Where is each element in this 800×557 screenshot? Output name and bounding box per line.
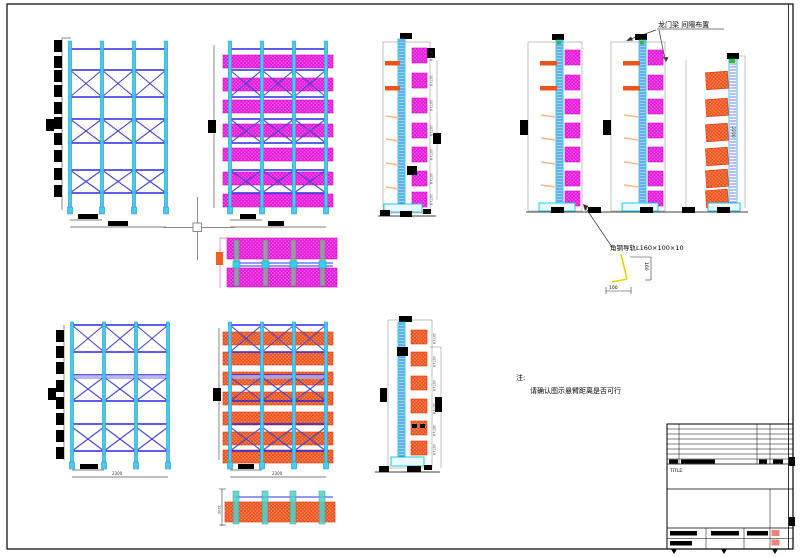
goods-block xyxy=(223,148,333,161)
redacted-dim xyxy=(268,221,284,226)
plan-post xyxy=(290,261,297,268)
redacted-dim xyxy=(54,70,62,82)
column xyxy=(102,322,105,462)
redacted-dim xyxy=(407,166,417,175)
foot-plate xyxy=(227,462,232,469)
cantilever-arm-thick xyxy=(540,61,557,66)
gantry-beam-label: 龙门梁 间隔布置 xyxy=(658,20,709,29)
overall-dim: 2300 xyxy=(272,471,283,476)
redacted-dim xyxy=(56,397,64,409)
goods-block xyxy=(411,352,427,366)
redacted-text xyxy=(670,541,692,546)
note-head: 注: xyxy=(516,373,525,382)
goods-magenta xyxy=(648,50,663,206)
foot-plate xyxy=(133,462,138,469)
height-dim-label: 2200 xyxy=(731,127,736,138)
dim-text: 1071.8 xyxy=(429,125,433,136)
goods-block xyxy=(223,194,333,207)
goods-block xyxy=(412,48,427,63)
goods-orange xyxy=(411,330,427,455)
goods-block xyxy=(411,376,427,390)
cantilever-arms xyxy=(541,115,555,187)
cantilever-arm xyxy=(541,138,555,140)
frame-elevation-bottom-left xyxy=(69,322,170,469)
highlight-beam xyxy=(70,375,170,379)
dim-text: 1071.8 xyxy=(432,356,436,367)
redacted-dim xyxy=(54,40,62,52)
strip-dim: 1200 xyxy=(217,505,221,514)
upright-column xyxy=(639,40,646,206)
cantilever-arm-thick xyxy=(385,61,400,66)
column xyxy=(260,41,263,207)
overall-dim: 2300 xyxy=(112,471,123,476)
top-cap xyxy=(399,316,412,322)
column xyxy=(324,322,327,462)
cantilever-arm-thick xyxy=(540,86,557,91)
cantilever-arms xyxy=(386,116,399,207)
cantilever-arm xyxy=(541,185,555,187)
leader-arrowhead xyxy=(626,37,633,42)
dim-100: 100 xyxy=(609,285,618,291)
redacted-dim xyxy=(238,464,254,469)
dim-text: 1071.8 xyxy=(429,75,433,86)
goods-block xyxy=(223,352,333,365)
redacted-dim xyxy=(412,424,417,428)
border-tick xyxy=(671,549,677,554)
foot-plate xyxy=(259,462,264,469)
column xyxy=(292,322,295,462)
base-pad xyxy=(424,465,432,470)
goods-block xyxy=(705,71,728,89)
dim-text: 1071.8 xyxy=(432,380,436,391)
foot-plate xyxy=(323,462,328,469)
redacted-dim xyxy=(54,168,62,180)
redacted-text xyxy=(773,460,783,464)
goods-block xyxy=(565,171,580,186)
goods-block xyxy=(565,147,580,162)
foot-plate xyxy=(227,207,232,214)
redacted-dim-stack xyxy=(56,330,64,459)
dim-160: 160 xyxy=(643,262,649,271)
redacted-text xyxy=(670,531,697,536)
redacted-dim xyxy=(54,150,62,162)
goods-block xyxy=(705,98,728,116)
cantilever-arm xyxy=(624,185,638,187)
base-pad xyxy=(407,466,421,472)
plan-post xyxy=(262,491,268,524)
redacted-dim xyxy=(54,56,62,68)
green-mark xyxy=(640,41,644,44)
column xyxy=(134,322,137,462)
goods-block xyxy=(705,147,728,165)
goods-block xyxy=(648,123,663,138)
foot-plate xyxy=(67,207,72,214)
redacted-text xyxy=(669,460,678,464)
goods-block xyxy=(705,123,728,141)
redacted-text xyxy=(711,531,739,536)
stamp-mark xyxy=(772,540,780,546)
stamp-mark xyxy=(772,530,780,536)
foot-plate xyxy=(163,207,168,214)
title-table-rows xyxy=(667,429,793,459)
goods-orange xyxy=(705,71,728,207)
goods-block xyxy=(565,123,580,138)
highlight-beam xyxy=(228,375,328,379)
goods-block xyxy=(223,100,333,113)
goods-block xyxy=(411,330,427,344)
dim-text: 2200 xyxy=(731,127,736,138)
green-mark xyxy=(557,41,561,44)
column xyxy=(292,41,295,207)
redacted-dim xyxy=(240,214,256,219)
angle-leg xyxy=(612,279,627,282)
redacted-dim xyxy=(54,85,62,97)
dim-text: 1071.8 xyxy=(429,194,433,205)
cantilever-arm xyxy=(386,116,399,118)
foot-plate xyxy=(99,207,104,214)
base-pad xyxy=(640,207,653,213)
column xyxy=(166,322,169,462)
base-pad xyxy=(423,209,431,214)
column xyxy=(228,322,231,462)
goods-block xyxy=(225,502,335,522)
goods-magenta xyxy=(412,48,427,207)
plan-post xyxy=(319,491,325,524)
redacted-dim xyxy=(56,362,64,374)
end-block xyxy=(216,252,223,265)
column xyxy=(70,322,73,462)
redacted-dim xyxy=(208,120,216,133)
border-mark xyxy=(789,457,795,466)
foot-plate xyxy=(101,462,106,469)
goods-block xyxy=(223,450,333,463)
upright-body xyxy=(398,322,405,460)
frame-elevation-top-left xyxy=(67,41,168,214)
cantilever-arm-thick xyxy=(385,86,400,91)
redacted-text xyxy=(747,531,768,536)
base-pad xyxy=(717,207,730,213)
column xyxy=(324,41,327,207)
column xyxy=(100,41,103,207)
plan-post xyxy=(319,261,326,268)
level-dim-labels: 1071.81071.81071.81071.81071.81071.81071… xyxy=(429,50,433,205)
cantilever-arm xyxy=(386,163,399,165)
goods-block xyxy=(223,172,333,185)
redacted-text xyxy=(759,460,767,464)
plan-post xyxy=(290,491,296,524)
goods-magenta xyxy=(565,50,580,206)
leader-arrowhead xyxy=(583,204,589,211)
foot-plate xyxy=(165,462,170,469)
cantilever-arm-thick xyxy=(623,61,640,66)
redacted-dim xyxy=(603,120,611,135)
redacted-dim-stack xyxy=(54,40,62,197)
column xyxy=(228,41,231,207)
redacted-dim xyxy=(80,464,98,469)
goods-block xyxy=(648,147,663,162)
column xyxy=(164,41,167,207)
redacted-dim xyxy=(78,214,98,219)
redacted-dim xyxy=(54,133,62,145)
redacted-dim xyxy=(213,388,221,401)
goods-block xyxy=(648,171,663,186)
goods-block xyxy=(565,99,580,114)
redacted-text xyxy=(681,460,715,464)
dim-text: 1071.8 xyxy=(432,403,436,414)
redacted-dim xyxy=(433,133,441,144)
redacted-dim xyxy=(56,430,64,442)
cad-drawing-page: 1071.81071.81071.81071.81071.81071.81071… xyxy=(0,0,800,557)
foot-plate xyxy=(323,207,328,214)
top-cap xyxy=(552,34,564,40)
angle-leg xyxy=(621,254,627,279)
rack-base xyxy=(391,457,424,466)
goods-block xyxy=(705,169,728,187)
cantilever-arm xyxy=(624,162,638,164)
goods-block xyxy=(411,399,427,413)
redacted-dim xyxy=(54,185,62,197)
top-cap xyxy=(635,34,647,40)
dim-text: 1071.8 xyxy=(429,173,433,184)
border-tick xyxy=(772,549,778,554)
redacted-dim xyxy=(108,221,128,226)
goods-block xyxy=(412,123,427,138)
goods-block xyxy=(648,75,663,90)
upright-column xyxy=(398,322,405,460)
cantilever-arm-thick xyxy=(623,86,640,91)
plan-post-caps xyxy=(233,261,326,268)
foot-plate xyxy=(291,207,296,214)
base-pad xyxy=(379,466,389,472)
redacted-dim xyxy=(56,447,64,459)
top-cap xyxy=(727,53,739,59)
goods-block xyxy=(565,75,580,90)
base-pad xyxy=(551,207,564,213)
plan-post xyxy=(233,261,240,268)
dim-text: 1071.8 xyxy=(432,333,436,344)
dim-text: 1071.8 xyxy=(432,425,436,436)
upright-column xyxy=(556,40,563,206)
foot-plate xyxy=(259,207,264,214)
redacted-dim xyxy=(397,347,408,356)
plan-post xyxy=(262,261,269,268)
redacted-dim xyxy=(54,102,62,114)
foot-plate xyxy=(69,462,74,469)
top-cap xyxy=(400,33,412,39)
dim-text: 1071.8 xyxy=(432,444,436,455)
goods-block xyxy=(223,412,333,425)
goods-block xyxy=(223,55,333,68)
goods-block xyxy=(648,99,663,114)
column xyxy=(68,41,71,207)
redacted-dim xyxy=(56,346,64,358)
redacted-dim xyxy=(48,388,56,400)
note-body: 请确认图示悬臂距离是否可行 xyxy=(530,386,621,395)
goods-block xyxy=(412,147,427,162)
level-dim-labels: 1071.81071.81071.81071.81071.81071.8 xyxy=(432,333,436,455)
cantilever-arm xyxy=(624,138,638,140)
leader-arrowhead xyxy=(663,57,669,63)
cad-canvas[interactable]: 1071.81071.81071.81071.81071.81071.81071… xyxy=(0,0,800,557)
cantilever-arm xyxy=(541,162,555,164)
cantilever-arms xyxy=(624,115,638,187)
redacted-dim xyxy=(56,330,64,342)
goods-block xyxy=(412,98,427,113)
redacted-dim xyxy=(420,424,425,428)
rail-label: 角钢导轨L160×100×10 xyxy=(610,243,684,252)
dim-text: 1071.8 xyxy=(429,149,433,160)
border-tick xyxy=(721,549,727,554)
goods-block xyxy=(412,73,427,88)
base-pad xyxy=(588,207,601,213)
dim-text: 1071.8 xyxy=(429,100,433,111)
green-mark xyxy=(729,59,735,63)
column xyxy=(260,322,263,462)
redacted-dim xyxy=(56,380,64,392)
drawing-layers: 1071.81071.81071.81071.81071.81071.81071… xyxy=(7,4,795,554)
cantilever-arm xyxy=(624,115,638,117)
redacted-dim xyxy=(54,117,62,129)
goods-block xyxy=(411,441,427,455)
redacted-dim xyxy=(46,119,54,131)
plan-post xyxy=(233,491,239,524)
dim-text: 1071.8 xyxy=(429,50,433,61)
title-label: TITLE: xyxy=(669,468,684,474)
redacted-dim xyxy=(380,388,387,402)
foot-plate xyxy=(291,462,296,469)
cursor-pickbox xyxy=(193,223,202,232)
redacted-dim xyxy=(520,120,528,135)
cantilever-arm xyxy=(386,139,399,141)
foot-plate xyxy=(131,207,136,214)
border-mark xyxy=(789,517,795,526)
cantilever-arm xyxy=(386,187,399,189)
column xyxy=(132,41,135,207)
goods-block xyxy=(648,50,663,65)
goods-orange xyxy=(225,502,335,522)
goods-block xyxy=(565,50,580,65)
base-pad xyxy=(682,207,695,213)
cantilever-arm xyxy=(541,115,555,117)
redacted-dim xyxy=(56,413,64,425)
base-pad xyxy=(380,210,390,216)
